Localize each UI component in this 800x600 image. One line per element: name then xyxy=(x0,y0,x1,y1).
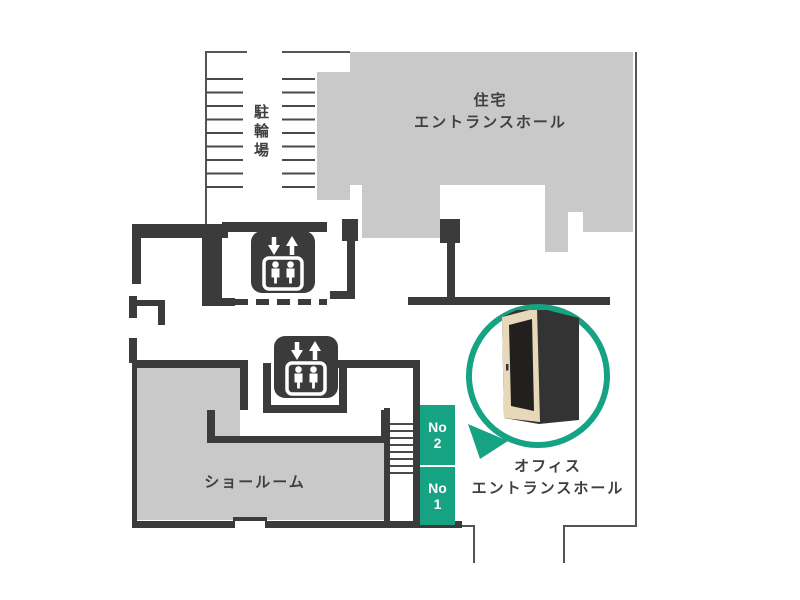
elevator-icon xyxy=(251,231,315,293)
wall-segment xyxy=(132,363,137,523)
floorplan: No 2 No 1 駐輪場 住宅 エントランスホール ショールーム オフィス エ… xyxy=(0,0,800,600)
unit-no2-number: 2 xyxy=(434,435,442,451)
wall-segment xyxy=(233,517,267,521)
wall-segment xyxy=(132,521,235,528)
wall-segment xyxy=(342,219,358,241)
outline-line xyxy=(205,51,247,53)
outline-line xyxy=(473,527,475,563)
wall-segment xyxy=(347,241,355,291)
bicycle-parking-label: 駐輪場 xyxy=(250,104,271,161)
wall-segment xyxy=(137,360,248,368)
elevator-icon xyxy=(274,336,338,398)
wall-segment xyxy=(408,297,610,305)
unit-no1-label: No xyxy=(428,480,447,496)
showroom-label: ショールーム xyxy=(195,472,315,494)
outline-line xyxy=(635,52,637,525)
area-residential-hall xyxy=(545,185,568,252)
wall-segment xyxy=(330,291,355,299)
office-booth-illustration xyxy=(472,310,604,442)
residential-hall-label-line2: エントランスホール xyxy=(408,112,573,134)
bicycle-rack-lines xyxy=(282,78,315,190)
area-residential-hall xyxy=(362,185,440,238)
wall-segment xyxy=(440,219,460,243)
office-booth-badge xyxy=(466,304,610,448)
wall-segment xyxy=(129,338,137,363)
stairs xyxy=(390,423,413,475)
door-dash-line xyxy=(235,299,327,305)
wall-segment xyxy=(447,243,455,300)
wall-segment xyxy=(129,296,137,318)
outline-line xyxy=(563,527,565,563)
wall-segment xyxy=(202,298,235,306)
wall-segment xyxy=(240,366,248,410)
office-hall-label-line1: オフィス xyxy=(448,456,648,478)
wall-segment xyxy=(132,224,228,238)
office-hall-label: オフィス エントランスホール xyxy=(448,456,648,500)
outline-line xyxy=(563,525,637,527)
area-residential-hall xyxy=(583,185,633,232)
outline-line xyxy=(282,51,350,53)
unit-no1-number: 1 xyxy=(434,496,442,512)
wall-segment xyxy=(158,300,165,325)
wall-segment xyxy=(132,224,141,284)
booth-door-handle xyxy=(506,364,509,371)
office-hall-label-line2: エントランスホール xyxy=(448,478,648,500)
wall-segment xyxy=(207,436,388,443)
wall-segment xyxy=(263,405,347,413)
area-residential-hall xyxy=(317,72,350,200)
bicycle-rack-lines xyxy=(206,78,243,190)
residential-hall-label-line1: 住宅 xyxy=(408,90,573,112)
residential-hall-label: 住宅 エントランスホール xyxy=(408,90,573,134)
area-residential-hall xyxy=(568,185,583,212)
wall-segment xyxy=(337,360,420,368)
unit-no2-label: No xyxy=(428,419,447,435)
wall-segment xyxy=(413,362,420,528)
wall-segment xyxy=(202,238,222,300)
